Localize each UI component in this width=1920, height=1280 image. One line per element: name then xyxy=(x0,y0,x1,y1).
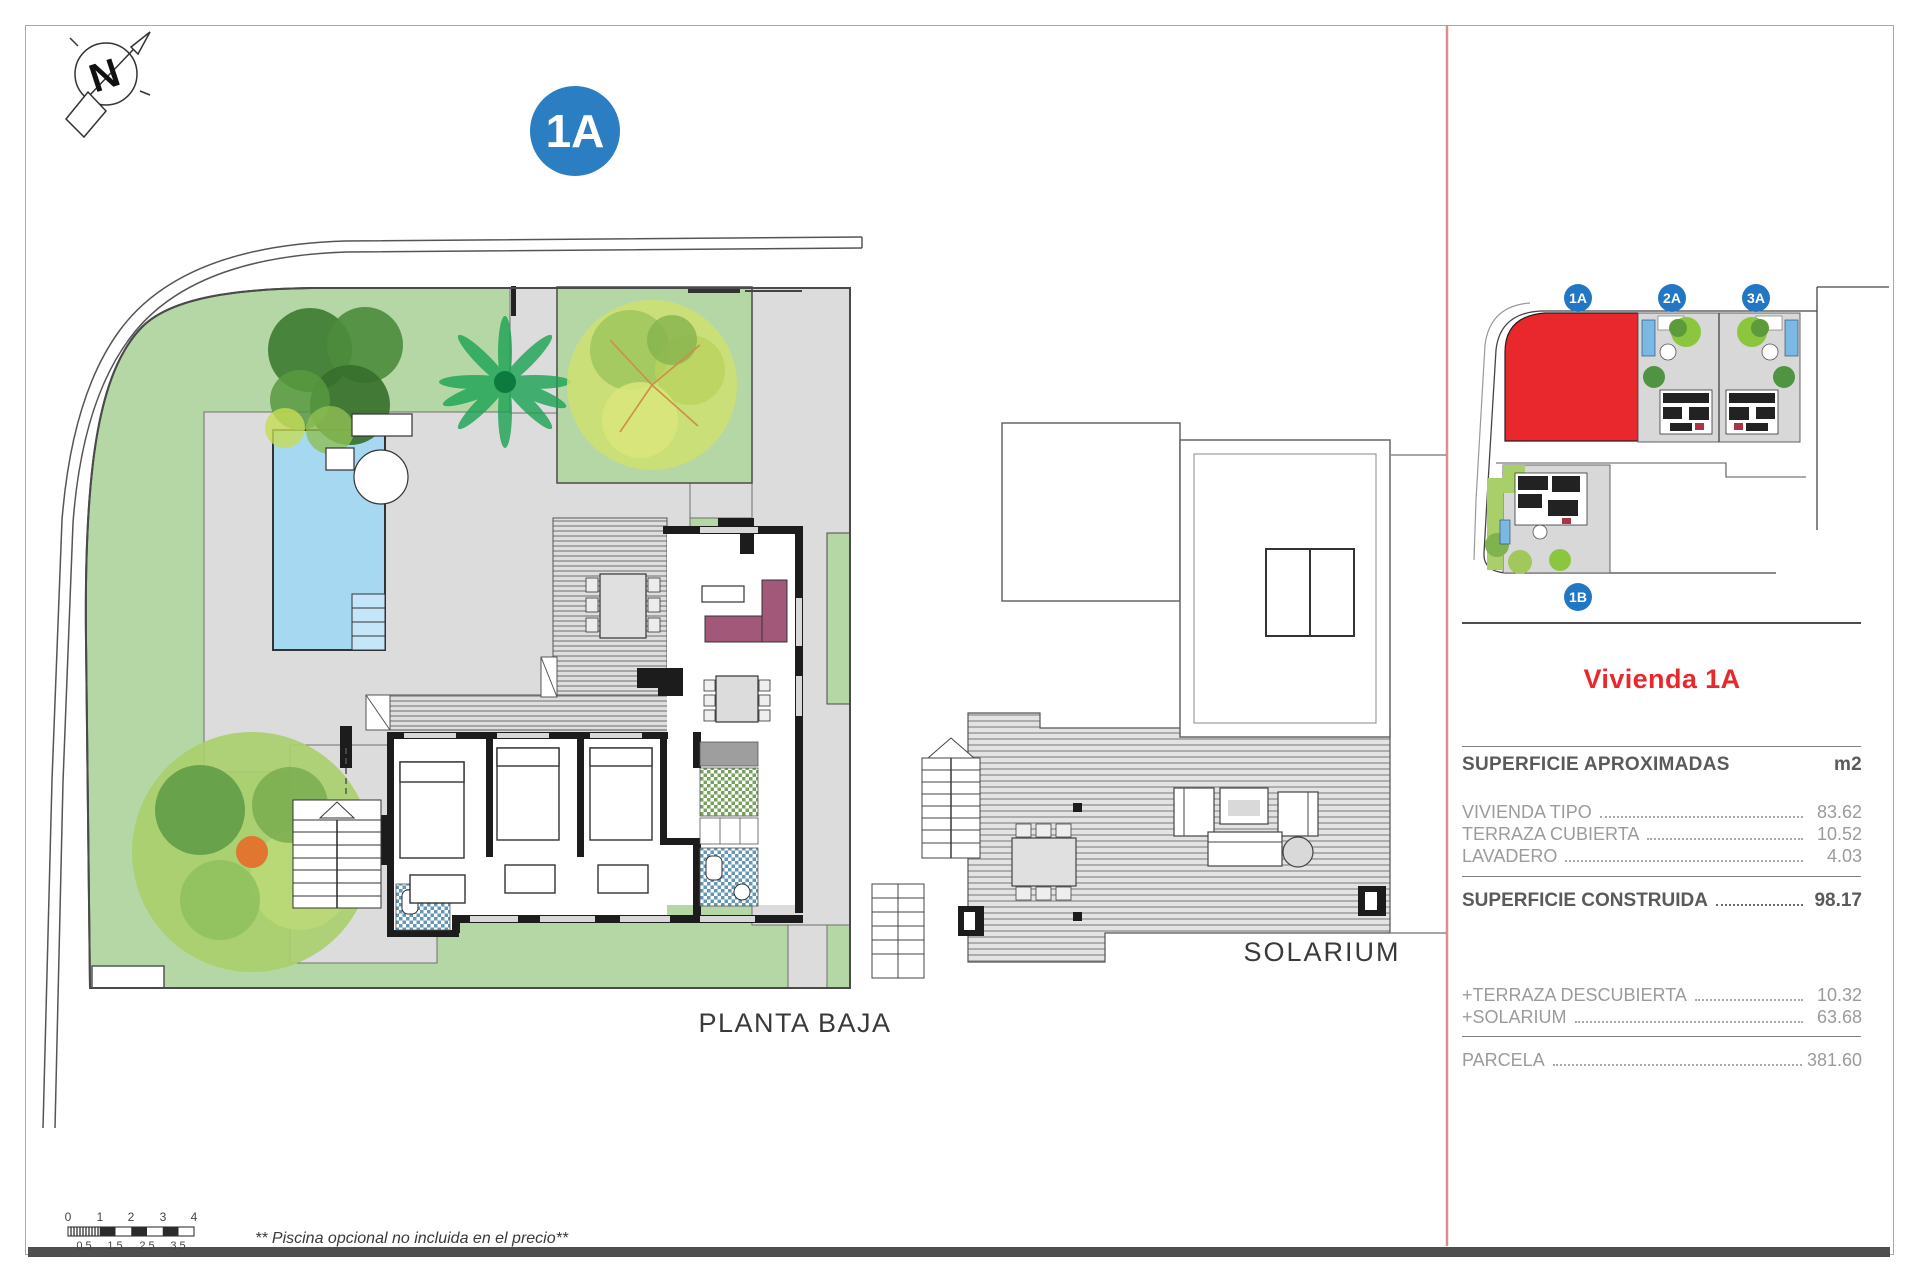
svg-text:0.5: 0.5 xyxy=(76,1240,91,1252)
unit-badge: 1A xyxy=(530,86,620,176)
surface-header-unit: m2 xyxy=(1834,754,1862,776)
surface-row: +SOLARIUM 63.68 xyxy=(1462,1007,1862,1029)
svg-text:3: 3 xyxy=(160,1210,167,1224)
exterior-stairs xyxy=(293,800,381,908)
surface-table-header: SUPERFICIE APROXIMADAS m2 xyxy=(1462,754,1862,776)
sidebar-title: Vivienda 1A xyxy=(1462,664,1862,695)
extra-surface-rows: +TERRAZA DESCUBIERTA 10.32 +SOLARIUM 63.… xyxy=(1462,985,1862,1029)
surface-row: VIVIENDA TIPO 83.62 xyxy=(1462,802,1862,824)
surface-row: LAVADERO 4.03 xyxy=(1462,846,1862,868)
separator xyxy=(1462,1036,1861,1037)
svg-text:1: 1 xyxy=(97,1210,104,1224)
bathroom xyxy=(700,848,758,906)
parcel-row: PARCELA 381.60 xyxy=(1462,1050,1862,1072)
roof-structure xyxy=(1002,423,1180,601)
separator xyxy=(1462,876,1861,877)
separator xyxy=(1462,746,1861,747)
svg-text:3.5: 3.5 xyxy=(170,1240,185,1252)
skylight xyxy=(1266,549,1354,636)
svg-text:4: 4 xyxy=(191,1210,198,1224)
surface-header-label: SUPERFICIE APROXIMADAS xyxy=(1462,754,1730,776)
kitchen xyxy=(700,742,758,844)
bedroom-furniture xyxy=(400,748,652,903)
svg-text:2.5: 2.5 xyxy=(139,1240,154,1252)
tree-yellow xyxy=(567,300,737,470)
solarium-label: SOLARIUM xyxy=(1243,937,1400,967)
car-gate xyxy=(92,966,164,988)
separator xyxy=(1462,622,1861,624)
ground-floor-label: PLANTA BAJA xyxy=(698,1008,891,1038)
dining-table xyxy=(716,676,758,722)
surface-rows: VIVIENDA TIPO 83.62 TERRAZA CUBIERTA 10.… xyxy=(1462,802,1862,868)
covered-terrace-band xyxy=(378,695,668,730)
unit-badge-label: 1A xyxy=(546,105,605,157)
garden-strip xyxy=(827,533,850,704)
info-sidebar: Vivienda 1A SUPERFICIE APROXIMADAS m2 VI… xyxy=(1462,0,1862,1280)
surface-row: TERRAZA CUBIERTA 10.52 xyxy=(1462,824,1862,846)
palm-tree xyxy=(439,316,571,448)
svg-text:1.5: 1.5 xyxy=(107,1240,122,1252)
built-surface-row: SUPERFICIE CONSTRUIDA 98.17 xyxy=(1462,890,1862,912)
floor-plan-sheet: PLANTA BAJA xyxy=(0,0,1920,1280)
gate-post xyxy=(511,286,516,316)
svg-text:0: 0 xyxy=(65,1210,72,1224)
surface-row: +TERRAZA DESCUBIERTA 10.32 xyxy=(1462,985,1862,1007)
terrace-dining-set xyxy=(586,574,660,638)
pool-footnote: ** Piscina opcional no incluida en el pr… xyxy=(255,1230,569,1247)
svg-text:2: 2 xyxy=(128,1210,135,1224)
